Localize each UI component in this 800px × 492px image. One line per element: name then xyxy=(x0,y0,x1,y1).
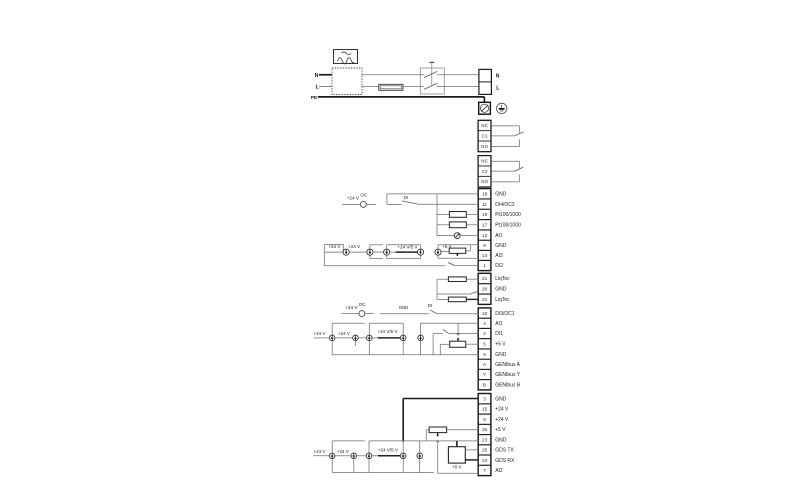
svg-text:Pt100/1000: Pt100/1000 xyxy=(495,212,521,218)
svg-text:17: 17 xyxy=(482,222,488,227)
svg-text:+24 V: +24 V xyxy=(495,407,509,413)
svg-text:GND: GND xyxy=(399,305,409,310)
svg-text:19: 19 xyxy=(482,212,488,217)
svg-text:AO: AO xyxy=(495,233,502,239)
svg-text:AI3: AI3 xyxy=(495,253,503,259)
svg-text:GND: GND xyxy=(495,352,507,358)
svg-text:GDS TX: GDS TX xyxy=(495,448,514,454)
svg-text:B: B xyxy=(483,382,486,387)
svg-text:DI: DI xyxy=(428,303,432,308)
svg-text:LiqTec: LiqTec xyxy=(495,297,510,303)
svg-text:+24 V: +24 V xyxy=(314,331,326,336)
svg-text:C1: C1 xyxy=(482,134,488,139)
svg-text:GENIbus B: GENIbus B xyxy=(495,382,521,388)
svg-text:C2: C2 xyxy=(482,169,488,174)
svg-text:GND: GND xyxy=(495,437,507,443)
svg-text:DI2: DI2 xyxy=(495,263,503,269)
svg-text:18: 18 xyxy=(482,191,488,196)
svg-text:23: 23 xyxy=(482,437,488,442)
svg-text:+24 V: +24 V xyxy=(314,449,326,454)
svg-text:20: 20 xyxy=(482,287,488,292)
svg-text:PE: PE xyxy=(311,95,317,100)
svg-text:+24 V: +24 V xyxy=(495,417,509,423)
svg-text:22: 22 xyxy=(482,297,488,302)
svg-text:+24 V: +24 V xyxy=(347,196,360,201)
svg-text:6: 6 xyxy=(483,352,486,357)
svg-text:2: 2 xyxy=(483,331,486,336)
svg-text:DI1: DI1 xyxy=(495,331,503,337)
svg-text:+5 V: +5 V xyxy=(495,427,506,433)
svg-text:1: 1 xyxy=(483,263,486,268)
svg-text:15: 15 xyxy=(482,407,488,412)
svg-text:25: 25 xyxy=(482,448,488,453)
svg-text:NO: NO xyxy=(481,179,488,184)
svg-text:GENIbus A: GENIbus A xyxy=(495,362,520,368)
svg-text:+24 V: +24 V xyxy=(345,305,358,310)
svg-text:14: 14 xyxy=(482,253,488,258)
svg-text:Pt100/1000: Pt100/1000 xyxy=(495,223,521,229)
svg-text:+24 V/5 V: +24 V/5 V xyxy=(378,329,398,334)
svg-text:GND: GND xyxy=(495,396,507,402)
svg-text:+5 V: +5 V xyxy=(452,464,461,469)
svg-text:3: 3 xyxy=(483,396,486,401)
svg-text:21: 21 xyxy=(482,276,488,281)
svg-text:OC: OC xyxy=(360,192,368,197)
svg-text:DI3/OC1: DI3/OC1 xyxy=(495,311,515,317)
svg-text:NC: NC xyxy=(481,158,488,163)
svg-text:+24 V: +24 V xyxy=(338,331,350,336)
svg-text:N: N xyxy=(315,73,319,79)
svg-text:9: 9 xyxy=(483,243,486,248)
svg-text:GDS RX: GDS RX xyxy=(495,458,515,464)
svg-text:7: 7 xyxy=(483,468,486,473)
svg-text:GND: GND xyxy=(495,192,507,198)
svg-text:5: 5 xyxy=(483,341,486,346)
svg-text:OC: OC xyxy=(359,302,367,307)
svg-text:26: 26 xyxy=(482,427,488,432)
svg-text:DI: DI xyxy=(404,195,408,200)
svg-text:+24 V: +24 V xyxy=(348,244,360,249)
svg-text:LiqTec: LiqTec xyxy=(495,276,510,282)
svg-text:AI2: AI2 xyxy=(495,468,503,474)
svg-text:12: 12 xyxy=(482,233,488,238)
svg-text:DI4/OC2: DI4/OC2 xyxy=(495,202,515,208)
svg-text:N: N xyxy=(496,74,500,80)
svg-text:+24 V: +24 V xyxy=(329,244,341,249)
svg-text:8: 8 xyxy=(483,417,486,422)
svg-text:GENIbus Y: GENIbus Y xyxy=(495,372,521,378)
svg-text:GND: GND xyxy=(495,243,507,249)
svg-text:AI1: AI1 xyxy=(495,321,503,327)
svg-text:NC: NC xyxy=(481,123,488,128)
svg-text:+5 V: +5 V xyxy=(495,342,506,348)
svg-text:NO: NO xyxy=(481,144,488,149)
svg-text:4: 4 xyxy=(483,321,486,326)
svg-text:24: 24 xyxy=(482,458,488,463)
svg-text:+24 V/5 V: +24 V/5 V xyxy=(378,447,398,452)
svg-text:11: 11 xyxy=(482,202,487,207)
svg-text:+24 V: +24 V xyxy=(337,449,349,454)
svg-text:10: 10 xyxy=(482,311,488,316)
svg-text:GND: GND xyxy=(495,287,507,293)
